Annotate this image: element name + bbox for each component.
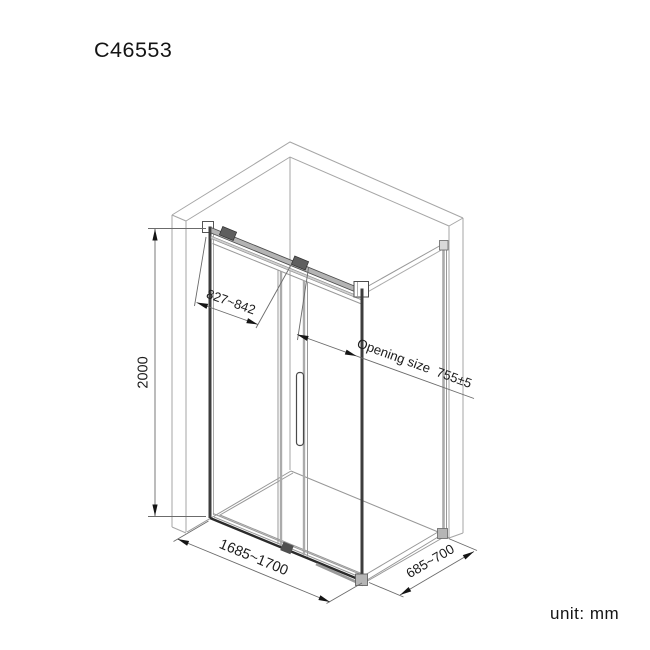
drawing-canvas: C46553 2000 827~842 Opening size 755±5 1… [0,0,650,650]
arrowhead [152,505,157,517]
page-title: C46553 [94,38,172,62]
arrowhead [463,549,476,559]
ext-line [195,237,207,306]
tray-back-junction [291,471,449,538]
dimension-height [148,229,206,517]
side-panel-wall-bracket [440,241,449,251]
dim-label-front-width: 1685~1700 [217,536,291,579]
roller-carriage-left [219,226,236,240]
roller-carriage-right [291,256,308,270]
side-panel-glass [363,241,448,584]
technical-drawing: C46553 2000 827~842 Opening size 755±5 1… [0,0,650,650]
ext-line [327,583,363,604]
side-panel-foot [438,529,448,539]
back-wall-end-bottom [449,533,463,538]
dim-label-door-panel-width: 827~842 [204,286,257,317]
door-handle [297,373,304,446]
back-wall-end-cap [449,218,463,226]
side-panel-top-edge [363,244,443,289]
sliding-door-assembly [203,222,369,586]
wall-inner-top-edge [186,157,449,226]
arrowhead [177,537,190,546]
arrowhead [345,350,358,359]
ext-line [256,265,291,328]
dim-label-opening-size: Opening size 755±5 [355,336,474,391]
dimensions [148,229,477,605]
ext-line [174,521,209,542]
arrowhead [152,229,157,241]
ext-line [369,583,404,598]
left-wall-front-cap [172,215,186,221]
unit-label: unit: mm [550,604,619,623]
walls [172,142,463,538]
wall-outer-top-edge [172,142,463,218]
arrowhead [318,595,331,604]
left-wall-front-bottom [172,527,186,533]
top-rail-lower-band [211,236,363,301]
arrowhead [196,300,209,309]
dim-label-height: 2000 [136,356,152,388]
side-panel-top-edge-inner [364,249,444,295]
